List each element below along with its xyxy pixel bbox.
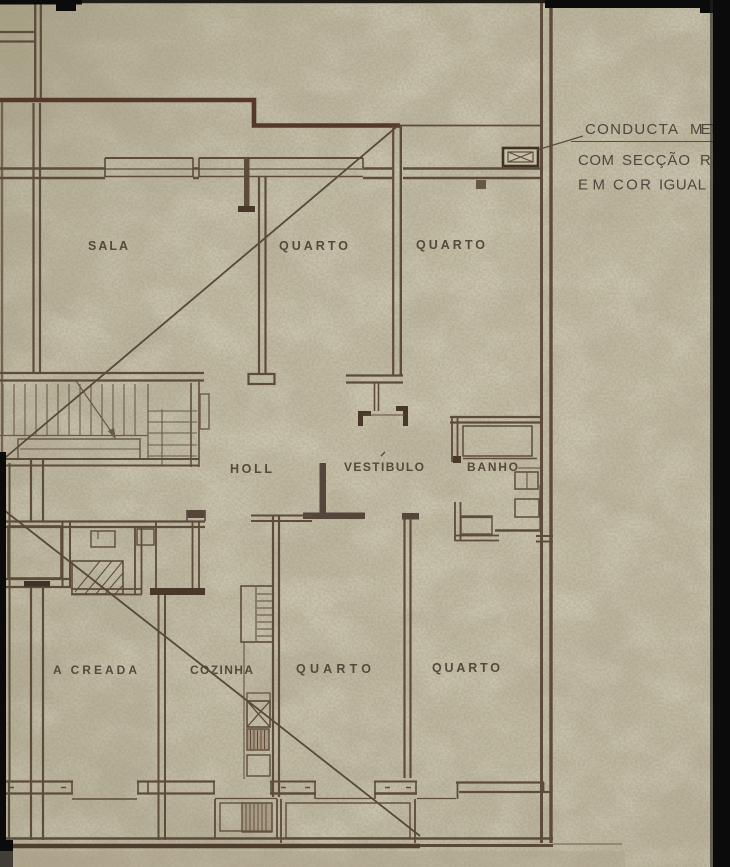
svg-text:A CREADA: A CREADA xyxy=(53,663,137,677)
svg-text:HOLL: HOLL xyxy=(230,462,272,476)
svg-text:BANHO: BANHO xyxy=(467,460,518,474)
svg-text:COZINHA: COZINHA xyxy=(190,663,253,677)
svg-text:IGUAL: IGUAL xyxy=(659,177,706,194)
svg-text:COM: COM xyxy=(578,152,614,169)
svg-text:SECÇÃO: SECÇÃO xyxy=(622,152,690,169)
svg-text:CONDUCTA: CONDUCTA xyxy=(585,121,678,138)
svg-text:VESTIBULO: VESTIBULO xyxy=(344,460,424,474)
svg-text:COR: COR xyxy=(613,177,651,194)
